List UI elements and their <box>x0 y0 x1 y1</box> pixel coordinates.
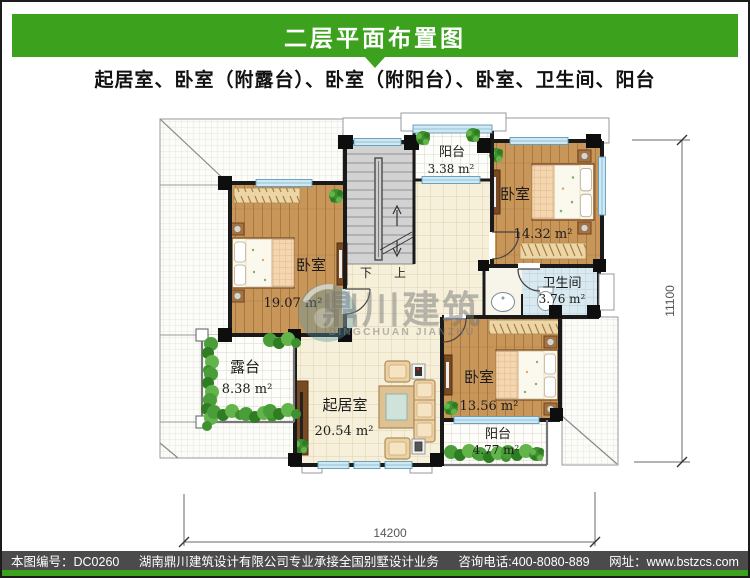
bathroom-window-ledge <box>599 274 614 310</box>
coffee-table-icon <box>379 386 414 428</box>
area-bedroom-se: 13.56 m² <box>460 399 519 414</box>
area-balcony-bottom: 4.77 m² <box>473 443 520 457</box>
stair-up-label: 上 <box>394 266 406 280</box>
label-balcony-bottom: 阳台 <box>485 427 511 442</box>
label-balcony-top: 阳台 <box>439 145 465 160</box>
watermark-en: DINGCHUAN JIANZHU <box>329 326 476 338</box>
footer-phone: 咨询电话:400-8080-889 <box>458 551 589 570</box>
bed-icon-bedroom-nw <box>232 238 294 288</box>
area-bathroom: 3.76 m² <box>539 292 586 306</box>
footer-company: 湖南鼎川建筑设计有限公司专业承接全国别墅设计业务 <box>139 551 439 570</box>
nightstand-icon <box>231 290 244 302</box>
nightstand-icon <box>578 150 591 162</box>
plant-icon <box>329 189 343 203</box>
area-balcony-top: 3.38 m² <box>428 162 475 176</box>
side-table-icon <box>412 439 425 454</box>
plant-icon <box>416 131 430 145</box>
bed-icon-bedroom-se <box>496 350 558 400</box>
area-living-room: 20.54 m² <box>315 424 374 439</box>
watermark: 鼎川建筑 DINGCHUAN JIANZHU <box>298 284 482 342</box>
nightstand-icon <box>578 222 591 234</box>
wardrobe-bedroom-se <box>489 320 559 334</box>
area-bedroom-ne: 14.32 m² <box>514 227 573 242</box>
wardrobe-bedroom-ne <box>520 243 586 259</box>
footer-serial: 本图编号：DC0260 <box>11 551 119 570</box>
label-terrace: 露台 <box>230 358 260 376</box>
nightstand-icon <box>231 223 244 235</box>
dimension-height: 11100 <box>663 285 677 317</box>
nightstand-icon <box>544 336 557 348</box>
footer-website: 网址：www.bstzcs.com <box>609 551 739 570</box>
dimension-width: 14200 <box>373 526 407 540</box>
footer-green-strip <box>2 570 748 576</box>
sofa-icon <box>414 380 435 442</box>
page: 二层平面布置图 起居室、卧室（附露台）、卧室（附阳台）、卧室、卫生间、阳台 <box>0 0 750 578</box>
footer-bar: 本图编号：DC0260 湖南鼎川建筑设计有限公司专业承接全国别墅设计业务 咨询电… <box>2 551 748 570</box>
label-bedroom-se: 卧室 <box>464 368 494 386</box>
floor-plan-drawing: 卧室 19.07 m² 卧室 14.32 m² 卧室 13.56 m² 起居室 … <box>2 2 750 578</box>
armchair-icon <box>385 438 410 459</box>
label-bedroom-ne: 卧室 <box>500 185 530 203</box>
label-bedroom-nw: 卧室 <box>296 256 326 274</box>
label-living-room: 起居室 <box>322 396 367 414</box>
armchair-icon <box>385 361 410 382</box>
wash-basin-icon <box>492 293 515 312</box>
bed-icon-bedroom-ne <box>532 164 594 220</box>
side-table-icon <box>412 364 425 379</box>
area-terrace: 8.38 m² <box>222 382 273 397</box>
stair-down-label: 下 <box>360 266 372 280</box>
plant-icon <box>444 401 458 415</box>
staircase <box>345 144 415 264</box>
plant-icon <box>466 128 480 142</box>
wardrobe-bedroom-nw <box>234 188 300 203</box>
label-bathroom: 卫生间 <box>542 276 581 291</box>
tv-cabinet-bedroom-se <box>444 355 452 395</box>
